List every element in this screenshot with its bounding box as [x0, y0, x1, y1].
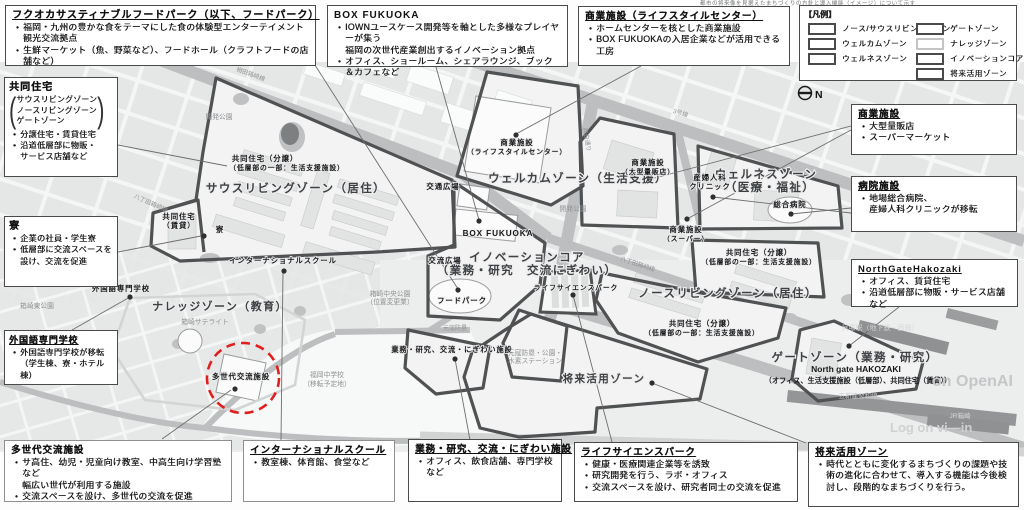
svg-text:共同住宅（分譲）: 共同住宅（分譲） — [232, 154, 298, 163]
svg-text:共同住宅: 共同住宅 — [162, 212, 195, 221]
svg-text:ウェルネスゾーン: ウェルネスゾーン — [715, 167, 818, 181]
svg-text:産婦人科: 産婦人科 — [693, 173, 726, 182]
svg-text:五新建翌和線: 五新建翌和線 — [839, 391, 879, 400]
svg-text:業務・研究、交流・にぎわい施設: 業務・研究、交流・にぎわい施設 — [390, 345, 512, 354]
svg-text:（移転予定地）: （移転予定地） — [303, 379, 351, 388]
svg-text:多世代交流施設: 多世代交流施設 — [212, 372, 270, 381]
svg-text:フードパーク: フードパーク — [437, 296, 487, 305]
svg-text:（位置変更業）: （位置変更業） — [366, 297, 414, 306]
svg-text:N: N — [815, 89, 823, 101]
svg-text:（医療・福祉）: （医療・福祉） — [725, 180, 815, 194]
svg-text:水素ステーション: 水素ステーション — [508, 356, 562, 365]
svg-text:（低層部の一部：生活支援施設）: （低層部の一部：生活支援施設） — [701, 257, 816, 266]
svg-text:Log on vi—in: Log on vi—in — [890, 420, 972, 435]
svg-text:元寇防塁: 元寇防塁 — [443, 324, 467, 332]
svg-text:BOX FUKUOKA: BOX FUKUOKA — [463, 229, 534, 238]
svg-text:（賃貸）: （賃貸） — [162, 221, 195, 230]
svg-text:ゲートゾーン（業務・研究）: ゲートゾーン（業務・研究） — [771, 350, 938, 364]
svg-text:on OpenAI: on OpenAI — [932, 373, 1013, 390]
svg-text:ノースリビングゾーン（居住）: ノースリビングゾーン（居住） — [638, 286, 818, 300]
svg-text:開発公園: 開発公園 — [559, 204, 586, 213]
svg-text:将来活用ゾーン: 将来活用ゾーン — [563, 372, 646, 385]
svg-text:交通広場: 交通広場 — [426, 182, 459, 191]
svg-text:（業務・研究 交流にぎわい）: （業務・研究 交流にぎわい） — [437, 263, 618, 277]
svg-text:総合病院: 総合病院 — [773, 200, 806, 209]
svg-text:（大型量販店）: （大型量販店） — [621, 167, 675, 176]
svg-text:箱崎東公園: 箱崎東公園 — [20, 301, 54, 310]
svg-text:イノベーションコア: イノベーションコア — [469, 251, 585, 264]
svg-text:交流広場: 交流広場 — [428, 256, 461, 265]
svg-text:サウスリビングゾーン（居住）: サウスリビングゾーン（居住） — [206, 181, 386, 195]
svg-text:共同住宅（分譲）: 共同住宅（分譲） — [726, 248, 792, 257]
svg-text:クリニック: クリニック — [689, 182, 730, 191]
svg-text:福岡中学校: 福岡中学校 — [310, 370, 344, 379]
svg-text:ライフサイエンスパーク: ライフサイエンスパーク — [534, 283, 618, 292]
svg-text:ナレッジゾーン（教育）: ナレッジゾーン（教育） — [152, 299, 288, 313]
svg-text:商業施設: 商業施設 — [669, 225, 702, 234]
svg-text:North gate HAKOZAKI: North gate HAKOZAKI — [811, 364, 901, 374]
svg-text:（低層部の一部：生活支援施設）: （低層部の一部：生活支援施設） — [644, 328, 759, 337]
svg-text:開発公園: 開発公園 — [205, 112, 232, 121]
svg-text:貝塚駅（地下鉄・西鉄）: 貝塚駅（地下鉄・西鉄） — [842, 323, 919, 332]
svg-text:（低層部の一部：生活支援施設）: （低層部の一部：生活支援施設） — [229, 163, 344, 172]
svg-text:元寇防塁・公園・: 元寇防塁・公園・ — [508, 348, 562, 357]
svg-text:商業施設: 商業施設 — [500, 138, 533, 147]
svg-text:箱崎中央公園: 箱崎中央公園 — [370, 289, 411, 298]
svg-text:商業施設: 商業施設 — [631, 158, 664, 167]
svg-text:寮: 寮 — [215, 225, 224, 234]
svg-text:JR箱崎: JR箱崎 — [950, 411, 971, 420]
svg-text:インターナショナルスクール: インターナショナルスクール — [229, 256, 337, 265]
svg-text:（スーパー）: （スーパー） — [663, 234, 709, 243]
svg-text:箱崎サテライト: 箱崎サテライト — [181, 317, 229, 326]
svg-text:（ライフスタイルセンター）: （ライフスタイルセンター） — [467, 147, 567, 156]
svg-text:（オフィス、生活支援施設（低層部）、共同住宅（賃貸））: （オフィス、生活支援施設（低層部）、共同住宅（賃貸）） — [765, 376, 952, 385]
svg-text:共同住宅（分譲）: 共同住宅（分譲） — [669, 319, 735, 328]
